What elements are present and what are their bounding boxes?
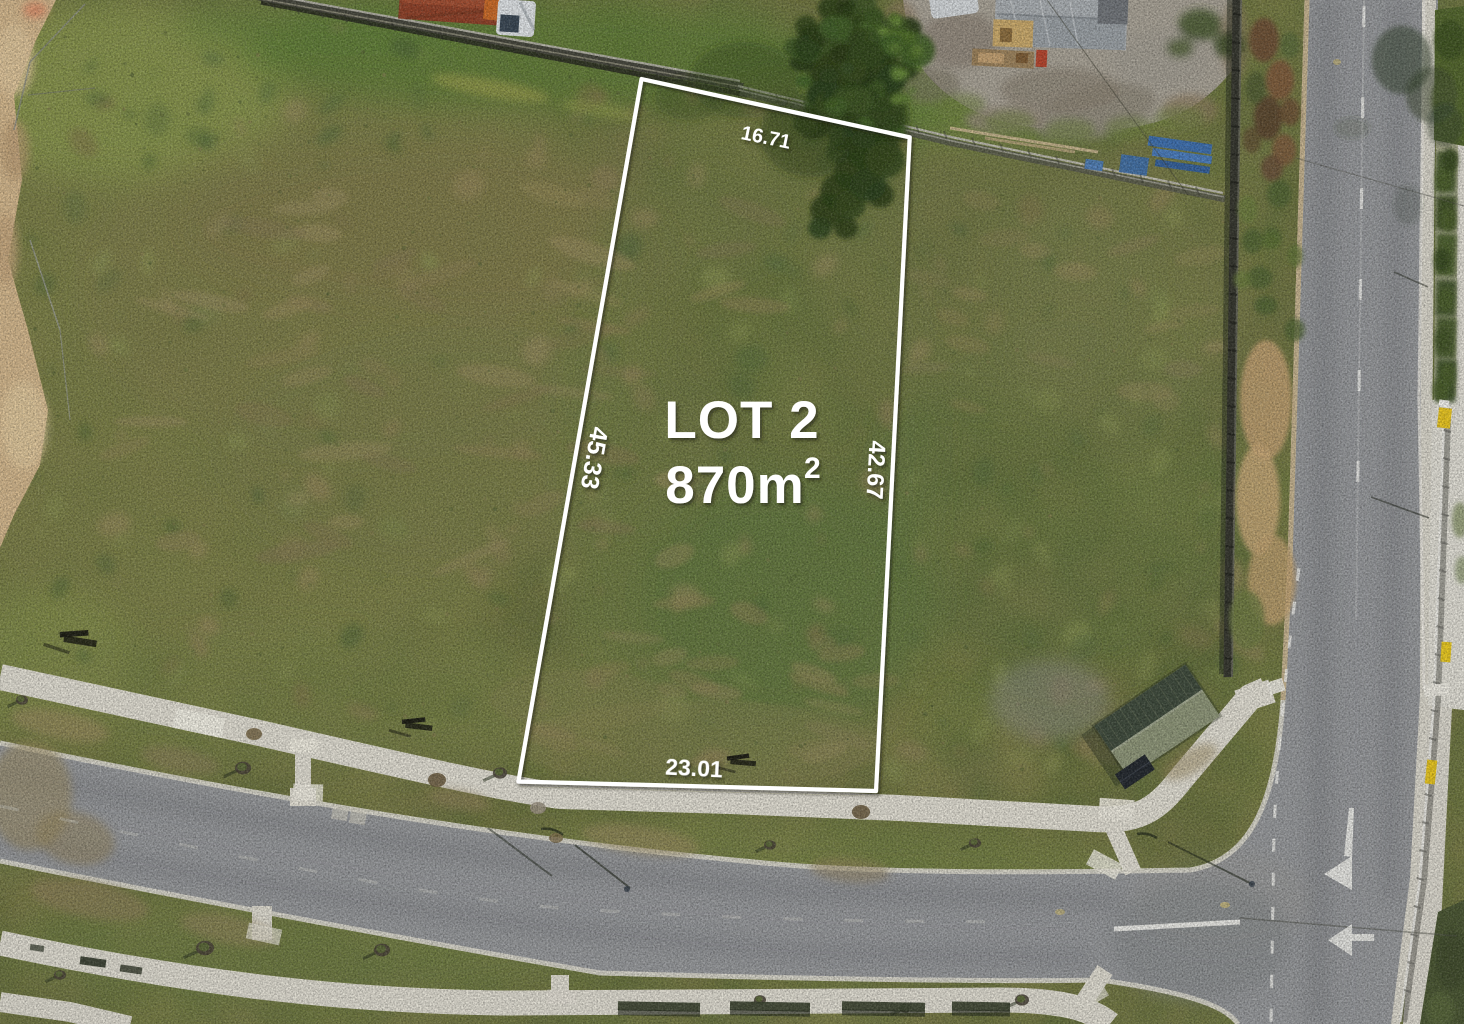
- svg-text:2: 2: [804, 452, 821, 485]
- svg-text:42.67: 42.67: [861, 440, 890, 500]
- svg-text:LOT 2: LOT 2: [664, 391, 819, 450]
- svg-text:870m: 870m: [665, 456, 805, 515]
- svg-text:23.01: 23.01: [665, 754, 724, 783]
